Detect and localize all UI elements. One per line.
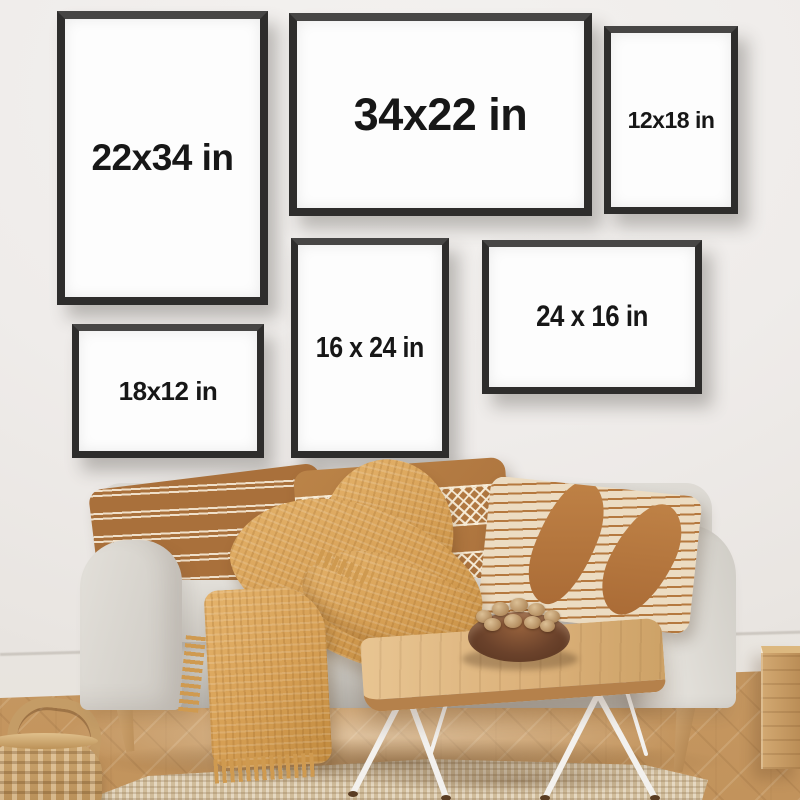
living-room-poster-size-mockup: 22x34 in 34x22 in 12x18 in 18x12 in 16 x… (0, 0, 800, 800)
nuts-in-bowl (468, 598, 570, 634)
